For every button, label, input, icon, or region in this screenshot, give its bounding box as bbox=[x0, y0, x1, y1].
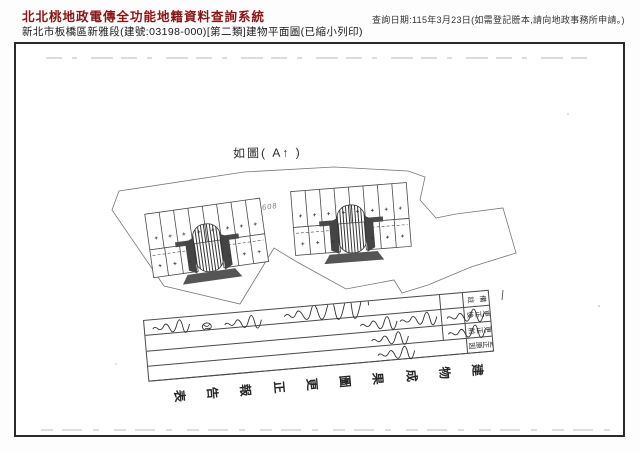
form-sub-cell bbox=[440, 308, 465, 325]
scanned-document: 如圖( A↑ ) 608 備註 更正後 更正前 更正原因 bbox=[14, 42, 625, 437]
rotated-char: 因 bbox=[467, 342, 475, 350]
rotated-char: 報 bbox=[239, 383, 252, 396]
form-row-header-note: 備註 bbox=[462, 291, 489, 307]
rotated-char: 更 bbox=[483, 325, 491, 333]
rotated-char: 建 bbox=[471, 363, 484, 376]
query-date-note: 查詢日期:115年3月23日(如需登記謄本,請向地政事務所申請。) bbox=[372, 13, 625, 26]
rotated-char: 更 bbox=[488, 340, 493, 348]
building-block-left bbox=[145, 198, 270, 288]
rotated-char: 備 bbox=[478, 295, 486, 303]
rotated-char: 更 bbox=[305, 377, 318, 390]
rotated-char: 物 bbox=[438, 366, 451, 379]
rotated-char: 正 bbox=[473, 311, 481, 319]
rotated-char: 正 bbox=[481, 341, 489, 349]
rotated-char: 後 bbox=[465, 311, 473, 319]
rotated-char: 前 bbox=[467, 327, 475, 335]
rotated-char: 原 bbox=[474, 341, 482, 349]
rotated-char: 正 bbox=[272, 380, 285, 393]
rotated-char: 表 bbox=[173, 389, 186, 402]
building-block-right bbox=[291, 183, 413, 267]
rotated-char: 註 bbox=[466, 296, 474, 304]
form-row-header-after: 更正後 bbox=[463, 306, 490, 323]
form-row-header-reason: 更正原因 bbox=[466, 337, 493, 353]
figure-note: 如圖( A↑ ) bbox=[233, 143, 302, 161]
rotated-char: 成 bbox=[404, 368, 417, 381]
rotated-char: 果 bbox=[371, 371, 384, 384]
form-row-header-before: 更正前 bbox=[465, 322, 492, 338]
document-subtitle: 新北市板橋區新雅段(建號:03198-000)[第二類]建物平面圖(已縮小列印) bbox=[22, 24, 363, 39]
rotated-char: 圖 bbox=[338, 374, 351, 387]
form-sub-cell bbox=[442, 324, 467, 340]
rotated-char: 更 bbox=[482, 310, 490, 318]
system-title: 北北桃地政電傳全功能地籍資料查詢系統 bbox=[22, 6, 265, 25]
rotated-char: 正 bbox=[475, 326, 483, 334]
form-sub-cell bbox=[439, 293, 464, 309]
rotated-char: 告 bbox=[206, 386, 219, 399]
